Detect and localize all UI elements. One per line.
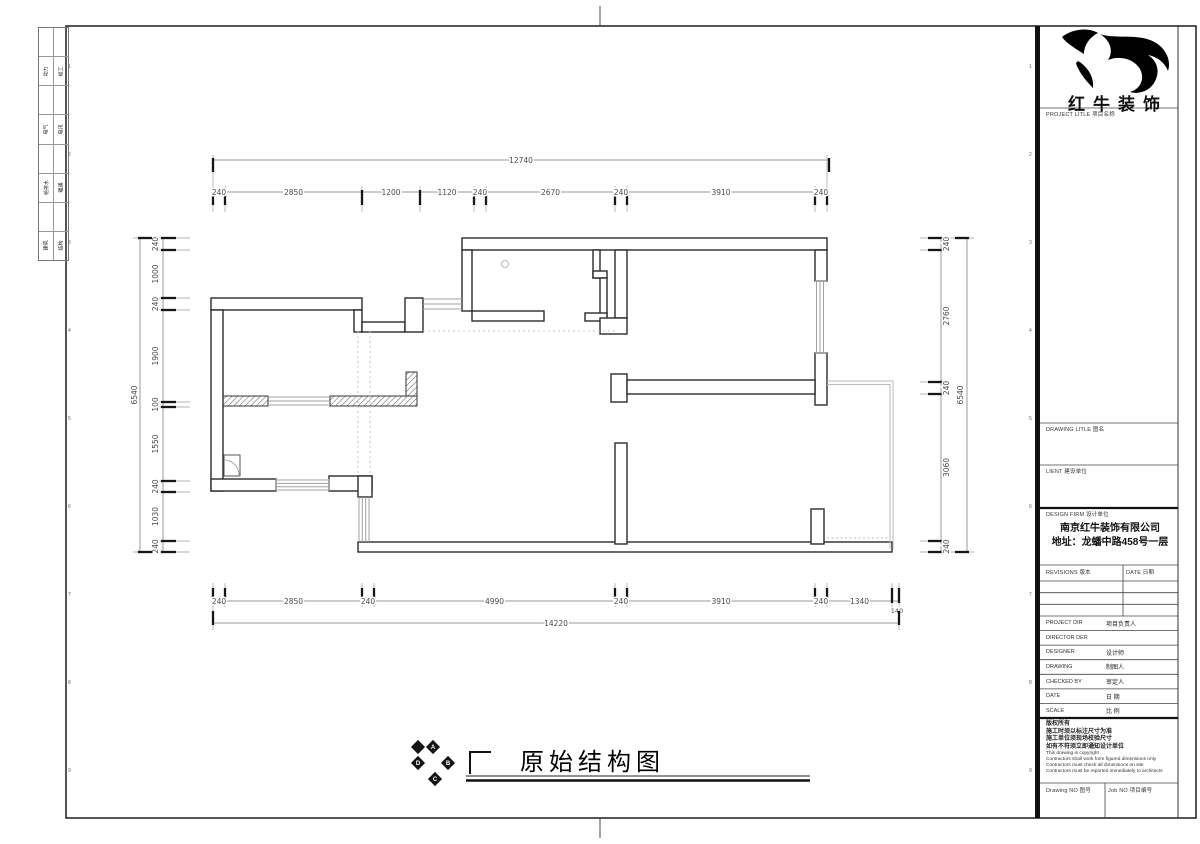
grid-ref-number: 7	[1029, 592, 1032, 598]
revisions-label: REVISIONS 版本	[1046, 568, 1091, 576]
dim-label: 2850	[284, 188, 303, 197]
grid-ref-number: 7	[68, 592, 71, 598]
strip-discipline-label: 给排水	[43, 180, 50, 195]
strip-cell: 动力	[39, 57, 53, 85]
strip-cell: 暖通	[53, 174, 68, 202]
strip-cell	[39, 203, 53, 231]
grid-ref-number: 3	[68, 240, 71, 246]
strip-row	[39, 85, 68, 114]
grid-ref-number: 6	[68, 504, 71, 510]
dim-label: 1030	[151, 507, 160, 526]
dim-label: 3910	[711, 188, 730, 197]
compass-letter: B	[446, 761, 451, 767]
dim-label: 1340	[850, 597, 869, 606]
grid-ref-number: 2	[68, 152, 71, 158]
grid-ref-number: 9	[1029, 768, 1032, 774]
dim-label: 240	[942, 381, 951, 396]
strip-row: 电气电讯	[39, 114, 68, 143]
sheet-frame	[66, 6, 1196, 838]
cad-floor-plan-canvas: 2402850120011202402670240391024012740240…	[0, 0, 1200, 844]
plan-windows	[268, 281, 827, 542]
dim-label: 2850	[284, 597, 303, 606]
personnel-row: SCALE比 例	[1046, 703, 1178, 718]
personnel-row: DIRECTOR DER	[1046, 631, 1178, 646]
strip-row	[39, 202, 68, 231]
personnel-role-en: SCALE	[1046, 708, 1106, 714]
strip-cell	[53, 86, 68, 114]
drawing-no-label: Drawing NO 图号	[1046, 786, 1091, 794]
strip-row: 建筑结构	[39, 231, 68, 260]
strip-cell: 竣工	[53, 57, 68, 85]
dim-label: 6540	[130, 385, 139, 404]
strip-cell	[53, 145, 68, 173]
dim-label: 6540	[956, 385, 965, 404]
strip-row	[39, 28, 68, 56]
strip-cell	[39, 28, 53, 56]
grid-ref-number: 6	[1029, 504, 1032, 510]
dim-label: 1200	[381, 188, 400, 197]
strip-cell: 电气	[39, 115, 53, 143]
note-line-zh: 版权所有	[1046, 721, 1178, 729]
dimension-annotations: 2402850120011202402670240391024012740240…	[130, 155, 974, 630]
door-swing-arc	[225, 460, 239, 475]
grid-ref-number: 3	[1029, 240, 1032, 246]
strip-cell	[39, 86, 53, 114]
personnel-role-en: DESIGNER	[1046, 649, 1106, 655]
personnel-role-zh: 比 例	[1106, 706, 1120, 715]
dim-label: 240	[151, 539, 160, 554]
personnel-role-en: DRAWING	[1046, 664, 1106, 670]
grid-ref-number: 4	[68, 328, 71, 334]
door-frame	[224, 455, 240, 476]
grid-ref-number: 5	[1029, 416, 1032, 422]
personnel-role-zh: 项目负责人	[1106, 619, 1136, 628]
personnel-role-en: DATE	[1046, 693, 1106, 699]
dim-label: 2760	[942, 306, 951, 325]
dim-label: 240	[942, 237, 951, 252]
dim-label: 3060	[942, 458, 951, 477]
dim-label: 240	[814, 597, 829, 606]
personnel-row: DATE日 期	[1046, 689, 1178, 704]
dim-label: 4990	[485, 597, 504, 606]
strip-discipline-label: 电气	[42, 124, 49, 134]
dim-label: 240	[614, 597, 629, 606]
personnel-role-zh: 日 期	[1106, 692, 1120, 701]
dim-label: 240	[151, 297, 160, 312]
dim-label: 12740	[509, 156, 533, 165]
plan-walls	[211, 238, 892, 552]
strip-cell: 建筑	[39, 232, 53, 260]
job-no-label: Job NO 项目编号	[1108, 786, 1152, 794]
strip-cell	[53, 28, 68, 56]
dim-label: 1900	[151, 346, 160, 365]
dim-label: 1550	[151, 434, 160, 453]
dim-label: 240	[942, 539, 951, 554]
personnel-role-zh: 设计师	[1106, 648, 1124, 657]
strip-cell	[53, 203, 68, 231]
dim-label: 1120	[437, 188, 456, 197]
personnel-role-en: CHECKED BY	[1046, 679, 1106, 685]
redbull-logo-icon	[1062, 30, 1169, 93]
company-address: 地址：龙蟠中路458号一层	[1042, 533, 1178, 548]
balcony-railing	[827, 381, 893, 549]
personnel-row: PROJECT DIR项目负责人	[1046, 616, 1178, 631]
date-column-label: DATE 日期	[1126, 568, 1154, 576]
grid-ref-number: 9	[68, 768, 71, 774]
strip-cell	[39, 145, 53, 173]
compass-letter: D	[416, 761, 421, 767]
grid-ref-number: 1	[1029, 64, 1032, 70]
design-firm-label: DESIGN FIRM 设计单位	[1046, 510, 1109, 518]
strip-row: 动力竣工	[39, 56, 68, 85]
dim-label: 240	[212, 597, 227, 606]
drawing-sheet: 2402850120011202402670240391024012740240…	[0, 0, 1200, 844]
strip-row	[39, 144, 68, 173]
personnel-role-en: PROJECT DIR	[1046, 620, 1106, 626]
dim-label: 240	[212, 188, 227, 197]
strip-row: 给排水暖通	[39, 173, 68, 202]
note-line-zh: 施工单位须现场校验尺寸	[1046, 736, 1178, 744]
personnel-row: CHECKED BY审定人	[1046, 674, 1178, 689]
dim-label: 3910	[711, 597, 730, 606]
grid-ref-number: 8	[1029, 680, 1032, 686]
dim-label: 240	[151, 479, 160, 494]
copyright-notes: 版权所有施工时须以标注尺寸为准施工单位须现场校验尺寸如有不符须立即通知设计单位T…	[1046, 721, 1178, 775]
dim-label: 140	[891, 607, 903, 615]
dim-label: 240	[151, 237, 160, 252]
strip-discipline-label: 动力	[42, 66, 49, 76]
dim-label: 2670	[541, 188, 560, 197]
drain-symbol	[502, 261, 509, 268]
dim-label: 240	[473, 188, 488, 197]
compass-letter: C	[433, 777, 438, 783]
personnel-role-zh: 审定人	[1106, 677, 1124, 686]
personnel-row: DRAWING制图人	[1046, 660, 1178, 675]
personnel-row: DESIGNER设计师	[1046, 645, 1178, 660]
company-name: 南京红牛装饰有限公司	[1042, 519, 1178, 534]
client-label: LIENT 建设单位	[1046, 467, 1087, 475]
personnel-role-en: DIRECTOR DER	[1046, 635, 1106, 641]
strip-cell: 给排水	[39, 174, 53, 202]
dim-label: 1000	[151, 264, 160, 283]
strip-discipline-label: 竣工	[57, 66, 64, 76]
dim-label: 100	[151, 397, 160, 412]
drawing-title-label: DRAWING LITLE 图名	[1046, 425, 1104, 433]
note-line-en: Contractors must be reported immediately…	[1046, 769, 1178, 775]
compass-letter: A	[431, 745, 436, 751]
dim-label: 240	[361, 597, 376, 606]
dim-label: 240	[814, 188, 829, 197]
grid-ref-number: 2	[1029, 152, 1032, 158]
strip-discipline-label: 暖通	[57, 183, 64, 193]
personnel-rows: PROJECT DIR项目负责人DIRECTOR DERDESIGNER设计师D…	[1046, 616, 1178, 718]
strip-discipline-label: 电讯	[57, 124, 64, 134]
compass-diamond	[411, 740, 425, 754]
north-compass-icon: ABCD	[411, 740, 455, 786]
strip-discipline-label: 结构	[57, 241, 64, 251]
dim-label: 14220	[544, 619, 568, 628]
drawing-title: 原始结构图	[520, 742, 665, 777]
grid-ref-number: 5	[68, 416, 71, 422]
grid-ref-number: 8	[68, 680, 71, 686]
strip-cell: 电讯	[53, 115, 68, 143]
project-title-label: PROJECT LITLE 项目名称	[1046, 110, 1115, 118]
discipline-index-strip: 动力竣工电气电讯给排水暖通建筑结构	[38, 27, 69, 261]
strip-discipline-label: 建筑	[42, 241, 49, 251]
strip-cell: 结构	[53, 232, 68, 260]
grid-ref-number: 4	[1029, 328, 1032, 334]
personnel-role-zh: 制图人	[1106, 662, 1124, 671]
grid-ref-number: 1	[68, 64, 71, 70]
dim-label: 240	[614, 188, 629, 197]
